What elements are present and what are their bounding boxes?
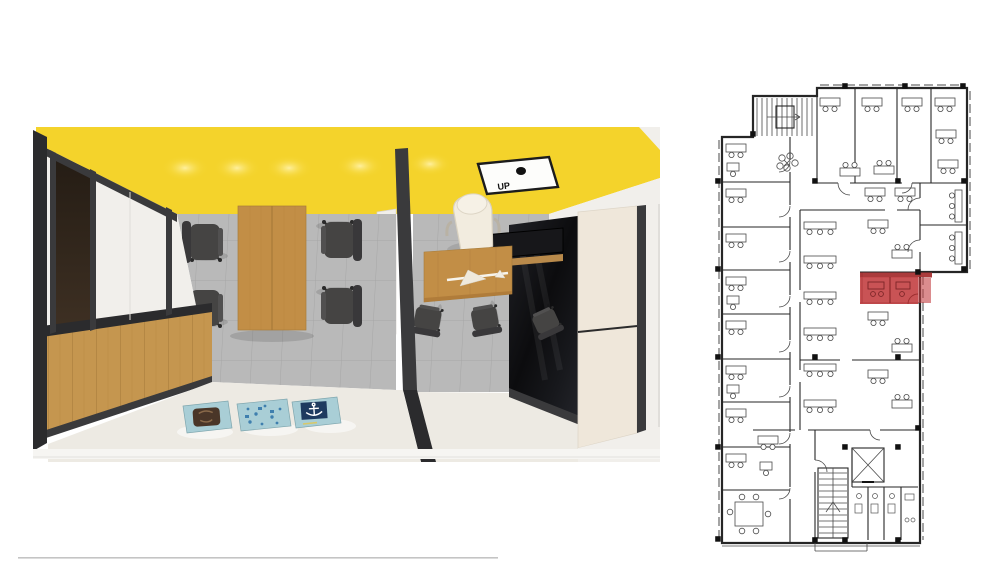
staircase-top <box>757 98 812 136</box>
office-3d-render: UP <box>33 127 660 462</box>
page-bottom-rule <box>18 557 498 559</box>
highlighted-room <box>860 273 932 305</box>
staircase-core <box>818 468 848 538</box>
interior-walls <box>722 88 967 543</box>
meeting-table <box>230 206 314 342</box>
entrance-marks <box>815 543 867 551</box>
cream-cabinet <box>578 204 660 462</box>
structural-columns <box>715 83 967 543</box>
scene: UP <box>0 0 1000 562</box>
floor-plan-outline <box>722 88 967 543</box>
sign-dot-icon <box>516 167 526 175</box>
art-board-anchor <box>292 397 341 428</box>
render-left-edge <box>33 130 47 451</box>
ceiling-up-sign: UP <box>478 157 558 194</box>
meeting-room-plan <box>727 494 771 534</box>
screenshot-canvas: UP <box>0 0 1000 562</box>
restrooms <box>855 494 915 523</box>
floor-plan <box>715 83 970 551</box>
elevator <box>852 448 884 482</box>
art-board-collage <box>237 399 291 431</box>
up-sign-label: UP <box>497 180 511 192</box>
art-board-crest <box>183 401 232 433</box>
doorway-opening <box>56 154 92 331</box>
window-glazing-lines <box>719 85 970 546</box>
